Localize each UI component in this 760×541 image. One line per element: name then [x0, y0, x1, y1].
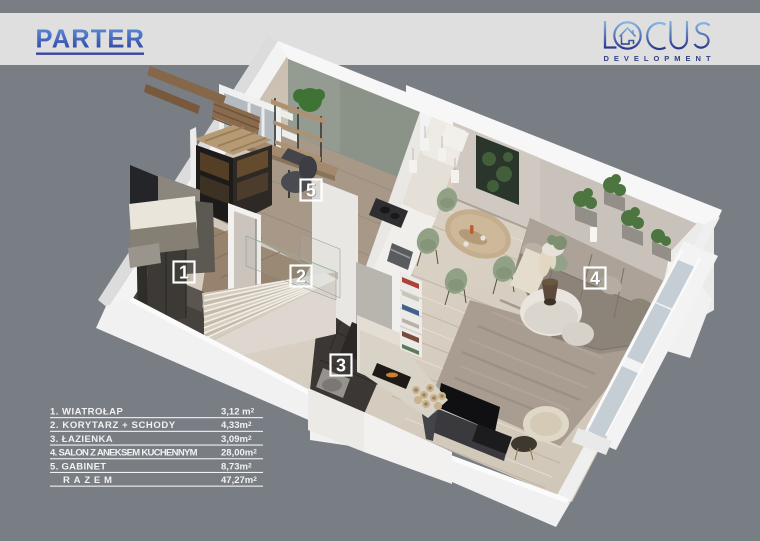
svg-text:5: 5	[306, 181, 316, 201]
svg-text:1: 1	[179, 263, 189, 283]
svg-text:4. SALON Z ANEKSEM KUCHENNYM: 4. SALON Z ANEKSEM KUCHENNYM	[50, 448, 198, 459]
svg-text:RAZEM: RAZEM	[63, 475, 116, 486]
svg-text:47,27m2: 47,27m2	[221, 475, 257, 486]
svg-text:PARTER: PARTER	[36, 26, 146, 54]
svg-text:3,09m2: 3,09m2	[221, 434, 252, 445]
svg-text:4: 4	[590, 269, 600, 289]
svg-text:3: 3	[336, 356, 346, 376]
svg-text:2: 2	[296, 267, 306, 287]
svg-text:8,73m2: 8,73m2	[221, 461, 252, 472]
svg-text:5. GABINET: 5. GABINET	[50, 461, 106, 472]
svg-text:4,33m2: 4,33m2	[221, 420, 252, 431]
svg-text:1. WIATROŁAP: 1. WIATROŁAP	[50, 407, 124, 418]
svg-text:28,00m2: 28,00m2	[221, 448, 257, 459]
svg-text:3. ŁAZIENKA: 3. ŁAZIENKA	[50, 434, 113, 445]
svg-text:2. KORYTARZ + SCHODY: 2. KORYTARZ + SCHODY	[50, 420, 176, 431]
svg-text:3,12 m2: 3,12 m2	[221, 407, 255, 418]
svg-text:DEVELOPMENT: DEVELOPMENT	[603, 54, 715, 63]
